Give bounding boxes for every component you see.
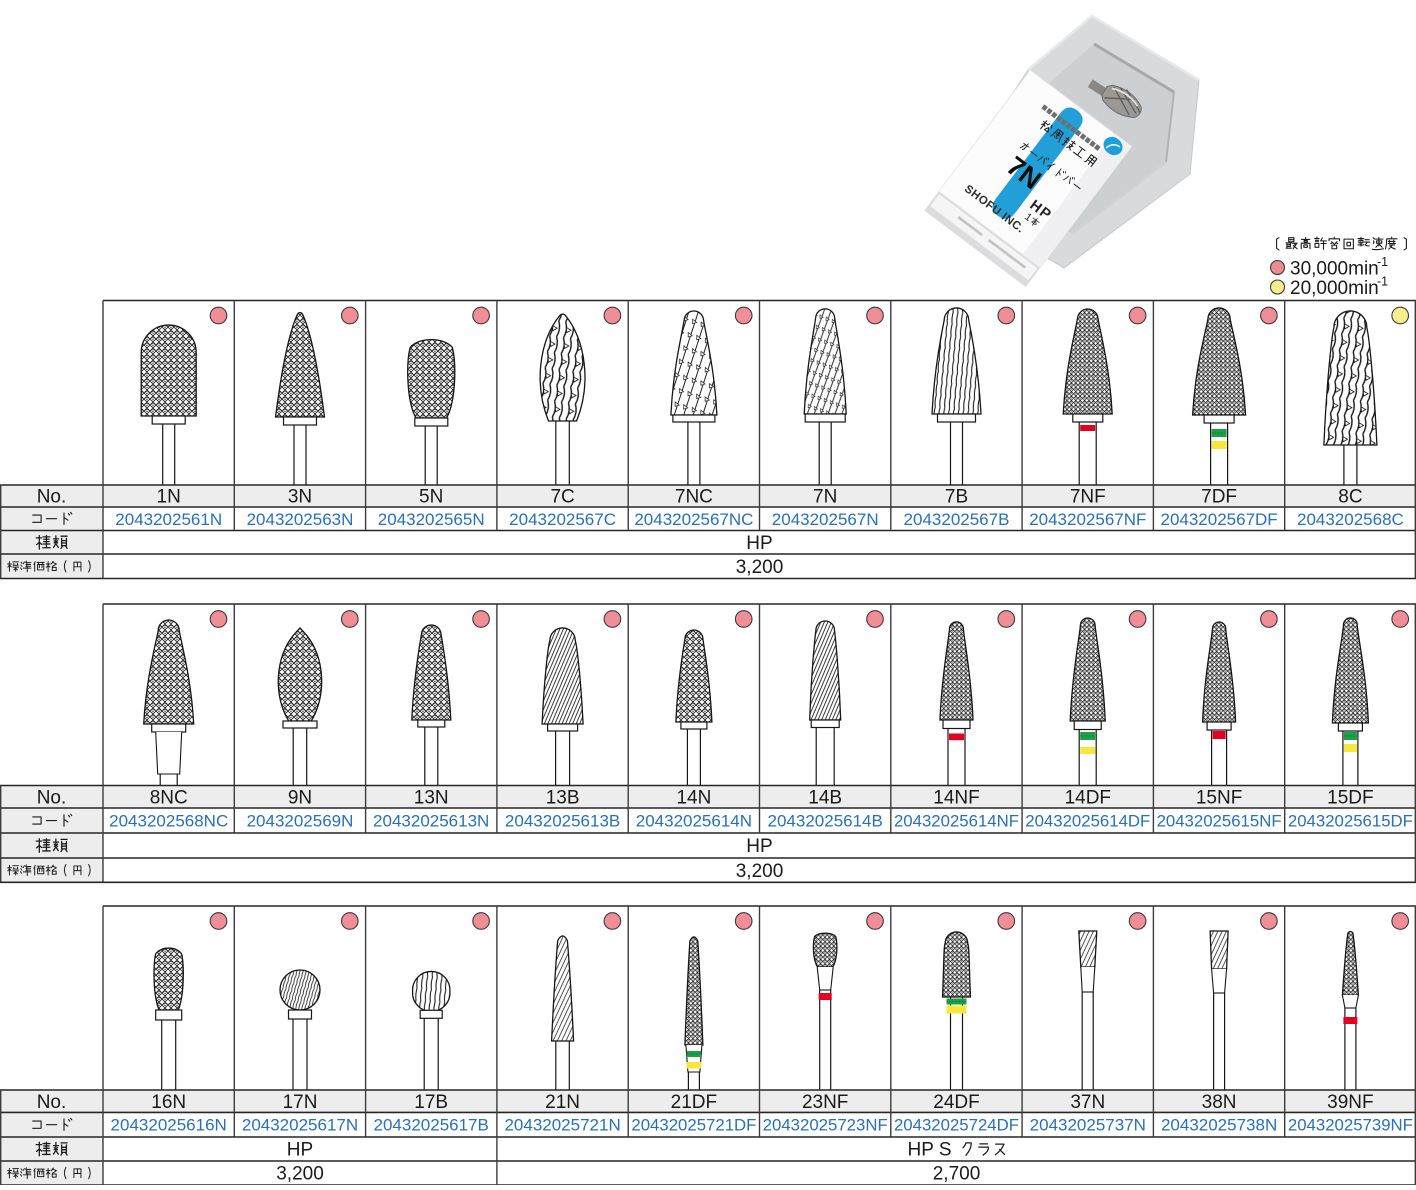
svg-text:8C: 8C <box>1338 487 1362 508</box>
svg-text:2043202567DF: 2043202567DF <box>1160 510 1277 529</box>
svg-text:20432025613N: 20432025613N <box>373 812 489 831</box>
svg-text:20432025723NF: 20432025723NF <box>763 1116 888 1135</box>
svg-text:17B: 17B <box>414 1092 448 1113</box>
svg-text:20432025721DF: 20432025721DF <box>631 1116 756 1135</box>
svg-text:3,200: 3,200 <box>276 1164 324 1185</box>
svg-text:20432025614DF: 20432025614DF <box>1025 812 1150 831</box>
svg-text:HP: HP <box>287 1140 313 1161</box>
svg-text:3N: 3N <box>288 487 312 508</box>
svg-text:16N: 16N <box>151 1092 186 1113</box>
svg-text:2043202567NC: 2043202567NC <box>634 510 753 529</box>
svg-text:2043202563N: 2043202563N <box>247 510 354 529</box>
svg-text:No.: No. <box>37 487 67 508</box>
svg-text:20432025614N: 20432025614N <box>636 812 752 831</box>
svg-text:7NF: 7NF <box>1070 487 1106 508</box>
svg-text:2043202561N: 2043202561N <box>115 510 222 529</box>
svg-text:13N: 13N <box>414 788 449 809</box>
svg-text:20432025617N: 20432025617N <box>242 1116 358 1135</box>
svg-text:24DF: 24DF <box>933 1092 979 1113</box>
svg-text:-1: -1 <box>1377 255 1388 269</box>
svg-text:-1: -1 <box>1377 275 1388 289</box>
svg-text:7C: 7C <box>550 487 574 508</box>
svg-text:2,700: 2,700 <box>933 1164 981 1185</box>
svg-text:7B: 7B <box>945 487 968 508</box>
svg-text:3,200: 3,200 <box>736 861 784 882</box>
svg-text:2043202567B: 2043202567B <box>904 510 1010 529</box>
svg-text:3,200: 3,200 <box>736 557 784 578</box>
svg-text:2043202569N: 2043202569N <box>247 812 354 831</box>
svg-text:7NC: 7NC <box>675 487 713 508</box>
svg-text:39NF: 39NF <box>1327 1092 1373 1113</box>
svg-text:21N: 21N <box>545 1092 580 1113</box>
svg-text:HP S: HP S <box>907 1140 951 1161</box>
svg-text:5N: 5N <box>419 487 443 508</box>
svg-text:20432025615DF: 20432025615DF <box>1288 812 1413 831</box>
svg-text:14B: 14B <box>808 788 842 809</box>
svg-text:1N: 1N <box>157 487 181 508</box>
svg-text:14DF: 14DF <box>1065 788 1111 809</box>
svg-text:20432025613B: 20432025613B <box>505 812 620 831</box>
svg-text:HP: HP <box>746 533 772 554</box>
svg-text:No.: No. <box>37 1092 67 1113</box>
svg-text:2043202565N: 2043202565N <box>378 510 485 529</box>
svg-text:20432025614B: 20432025614B <box>768 812 883 831</box>
svg-text:HP: HP <box>746 836 772 857</box>
svg-text:20432025738N: 20432025738N <box>1161 1116 1277 1135</box>
svg-text:2043202568NC: 2043202568NC <box>109 812 228 831</box>
svg-text:7N: 7N <box>813 487 837 508</box>
svg-text:20432025617B: 20432025617B <box>374 1116 489 1135</box>
svg-text:7DF: 7DF <box>1201 487 1237 508</box>
svg-text:23NF: 23NF <box>802 1092 848 1113</box>
svg-text:2043202567N: 2043202567N <box>772 510 879 529</box>
svg-text:20432025721N: 20432025721N <box>504 1116 620 1135</box>
svg-text:38N: 38N <box>1202 1092 1237 1113</box>
svg-text:2043202567C: 2043202567C <box>509 510 616 529</box>
svg-text:20432025616N: 20432025616N <box>111 1116 227 1135</box>
svg-text:15NF: 15NF <box>1196 788 1242 809</box>
svg-text:20432025739NF: 20432025739NF <box>1288 1116 1413 1135</box>
svg-text:15DF: 15DF <box>1327 788 1373 809</box>
svg-text:20432025724DF: 20432025724DF <box>894 1116 1019 1135</box>
svg-text:14N: 14N <box>676 788 711 809</box>
svg-text:20432025615NF: 20432025615NF <box>1157 812 1282 831</box>
svg-text:20,000min: 20,000min <box>1290 278 1379 299</box>
svg-text:No.: No. <box>37 788 67 809</box>
svg-text:37N: 37N <box>1070 1092 1105 1113</box>
svg-text:2043202568C: 2043202568C <box>1297 510 1404 529</box>
svg-text:2043202567NF: 2043202567NF <box>1029 510 1146 529</box>
svg-text:13B: 13B <box>546 788 580 809</box>
svg-text:14NF: 14NF <box>933 788 979 809</box>
svg-text:21DF: 21DF <box>671 1092 717 1113</box>
svg-text:8NC: 8NC <box>150 788 188 809</box>
svg-text:20432025737N: 20432025737N <box>1030 1116 1146 1135</box>
svg-text:30,000min: 30,000min <box>1290 259 1379 280</box>
svg-text:17N: 17N <box>283 1092 318 1113</box>
svg-text:9N: 9N <box>288 788 312 809</box>
svg-text:20432025614NF: 20432025614NF <box>894 812 1019 831</box>
